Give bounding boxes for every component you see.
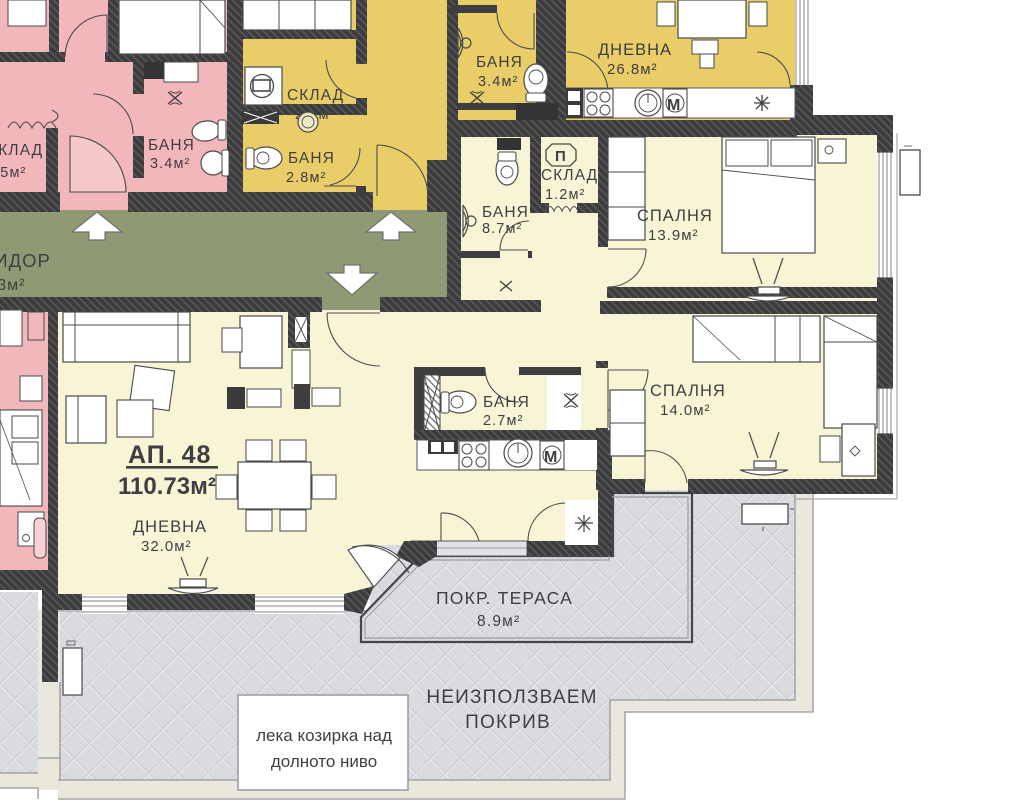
svg-text:М: М	[544, 449, 557, 466]
svg-text:АП. 48: АП. 48	[128, 441, 211, 469]
svg-text:14.0м²: 14.0м²	[660, 402, 711, 419]
svg-text:32.0м²: 32.0м²	[141, 538, 192, 555]
svg-text:долното ниво: долното ниво	[271, 752, 377, 771]
svg-text:2.7м²: 2.7м²	[483, 413, 523, 429]
svg-text:ПОКРИВ: ПОКРИВ	[465, 712, 551, 733]
svg-text:1.2м²: 1.2м²	[545, 187, 585, 203]
svg-text:26.8м²: 26.8м²	[607, 61, 658, 78]
svg-text:3.4м²: 3.4м²	[150, 156, 190, 172]
svg-text:М: М	[667, 97, 680, 114]
svg-text:БАНЯ: БАНЯ	[148, 137, 195, 154]
svg-text:СПАЛНЯ: СПАЛНЯ	[650, 382, 726, 400]
svg-text:2.8м²: 2.8м²	[286, 170, 326, 186]
svg-text:13.9м²: 13.9м²	[648, 227, 699, 244]
svg-text:лека козирка над: лека козирка над	[256, 726, 392, 745]
svg-text:СКЛАД: СКЛАД	[541, 167, 598, 184]
svg-text:КОРИДОР: КОРИДОР	[0, 250, 51, 271]
svg-text:БАНЯ: БАНЯ	[476, 54, 523, 71]
svg-text:ДНЕВНА: ДНЕВНА	[133, 518, 207, 536]
svg-text:СКЛАД: СКЛАД	[0, 142, 43, 159]
svg-text:БАНЯ: БАНЯ	[482, 204, 529, 221]
svg-text:БАНЯ: БАНЯ	[483, 394, 530, 411]
svg-text:П: П	[555, 148, 566, 165]
svg-text:15.3м²: 15.3м²	[0, 277, 25, 294]
svg-text:БАНЯ: БАНЯ	[288, 150, 335, 167]
svg-text:1.5м²: 1.5м²	[0, 165, 26, 181]
svg-text:110.73м²: 110.73м²	[118, 473, 216, 500]
svg-text:НЕИЗПОЛЗВАЕМ: НЕИЗПОЛЗВАЕМ	[426, 687, 597, 708]
svg-text:СПАЛНЯ: СПАЛНЯ	[637, 207, 713, 225]
svg-text:8.9м²: 8.9м²	[477, 613, 520, 630]
svg-text:3.4м²: 3.4м²	[478, 74, 518, 90]
svg-text:СКЛАД: СКЛАД	[287, 87, 344, 104]
svg-text:8.7м²: 8.7м²	[482, 221, 522, 237]
svg-text:ДНЕВНА: ДНЕВНА	[598, 41, 672, 59]
svg-text:ПОКР. ТЕРАСА: ПОКР. ТЕРАСА	[436, 588, 573, 608]
